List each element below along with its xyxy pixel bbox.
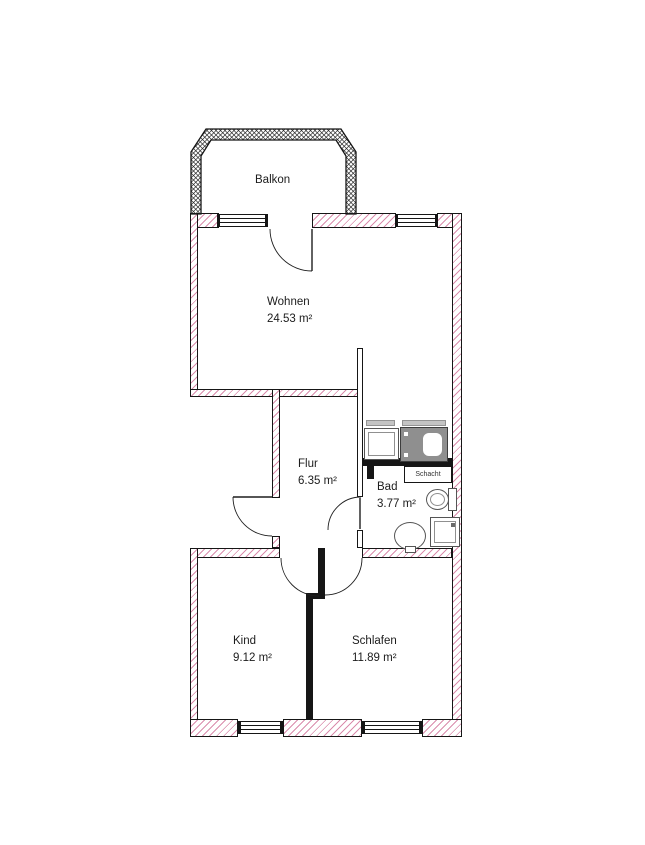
door-arc-balcony <box>270 229 312 271</box>
exterior-wall-bottom-segment <box>190 719 238 737</box>
shaft-label: Schacht <box>415 471 440 478</box>
door-arc-entry <box>233 497 272 536</box>
floor-plan: Schacht Balkon Wohnen 24.53 m² Flur 6.35… <box>0 0 645 845</box>
room-label-schlafen: Schlafen 11.89 m² <box>352 633 397 667</box>
faucet-fitting <box>366 420 395 426</box>
room-label-kind: Kind 9.12 m² <box>233 633 272 667</box>
room-area-schlafen: 11.89 m² <box>352 650 397 667</box>
wall-kind-schlafen-upper <box>318 548 325 596</box>
toilet-tank <box>448 488 457 511</box>
exterior-wall-bottom-segment <box>422 719 462 737</box>
exterior-wall-left-lower <box>190 548 198 737</box>
wall-flur-right-upper <box>357 348 363 497</box>
room-area-wohnen: 24.53 m² <box>267 311 312 328</box>
room-area-kind: 9.12 m² <box>233 650 272 667</box>
exterior-wall-left-upper <box>190 213 198 397</box>
exterior-wall-top-segment <box>312 213 396 228</box>
window-schlafen <box>362 721 422 734</box>
washing-machine <box>364 428 399 460</box>
room-label-flur: Flur 6.35 m² <box>298 456 337 490</box>
faucet-fitting <box>402 420 446 426</box>
room-label-balkon: Balkon <box>255 172 290 189</box>
wall-kind-schlafen-lower <box>306 596 313 719</box>
exterior-wall-right <box>452 213 462 737</box>
window-wohnen-balcony <box>217 214 268 227</box>
room-area-flur: 6.35 m² <box>298 473 337 490</box>
wall-mid-left <box>190 548 280 558</box>
exterior-wall-bottom-segment <box>283 719 362 737</box>
wall-flur-left-upper <box>272 389 280 498</box>
wall-flur-left-lower <box>272 536 280 548</box>
wall-shaft-stub <box>367 466 374 479</box>
door-arc-bad <box>328 497 361 530</box>
bathtub <box>400 427 448 462</box>
wall-flur-right-lower <box>357 530 363 548</box>
door-arc-schlafen <box>325 558 362 595</box>
window-wohnen-right <box>395 214 438 227</box>
washbasin-tap <box>405 546 416 553</box>
window-kind <box>238 721 283 734</box>
room-area-bad: 3.77 m² <box>377 496 416 513</box>
room-label-bad: Bad 3.77 m² <box>377 479 416 513</box>
door-arc-kind <box>281 558 319 596</box>
toilet <box>426 489 449 510</box>
room-label-wohnen: Wohnen 24.53 m² <box>267 294 312 328</box>
shower-tray <box>430 517 460 547</box>
